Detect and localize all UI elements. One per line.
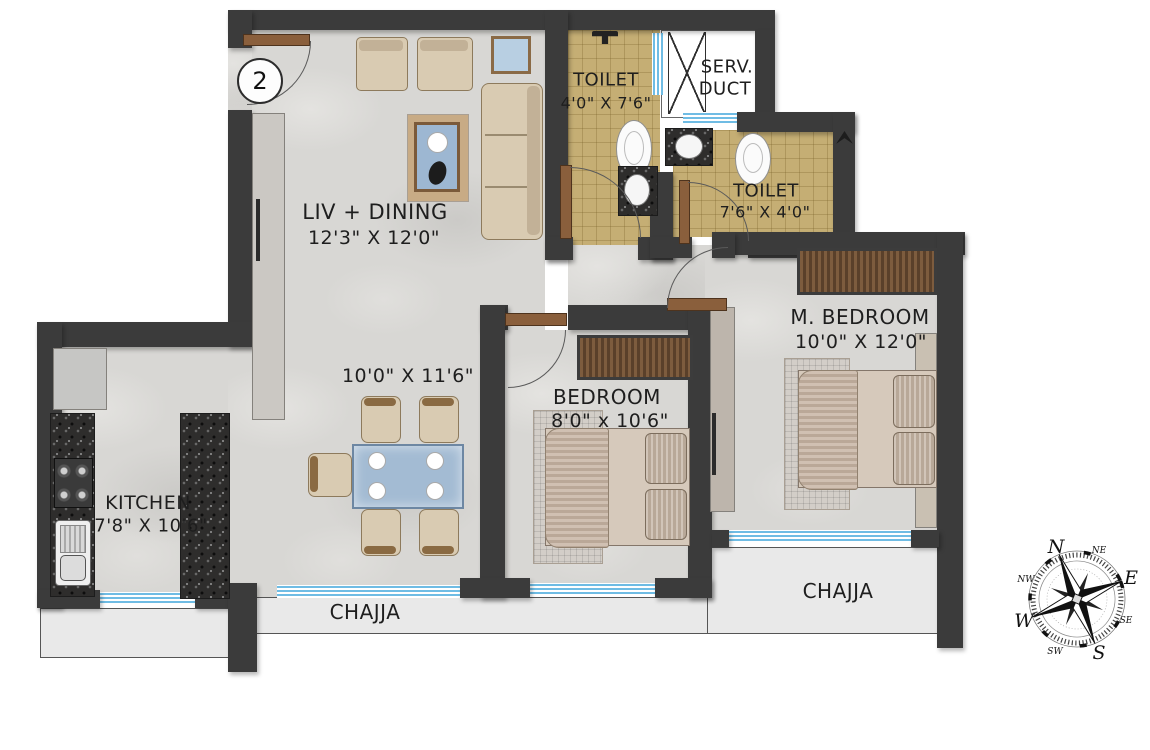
sink-bowl <box>60 555 86 581</box>
wall-segment <box>911 530 939 547</box>
wall-segment <box>655 578 712 598</box>
compass-label-ne: NE <box>1091 546 1107 556</box>
wall-segment <box>460 578 530 598</box>
wall-segment <box>712 530 729 547</box>
room-label-toilet-2: TOILET <box>733 181 799 202</box>
wardrobe <box>797 248 937 295</box>
compass-rose: N E S W NE SE SW NW <box>1003 533 1150 673</box>
chair-back <box>422 546 454 554</box>
wardrobe <box>577 335 693 380</box>
compass-label-w: W <box>1014 610 1035 632</box>
place-setting <box>368 482 386 500</box>
decor-plate <box>427 132 448 153</box>
tv-icon <box>256 199 260 261</box>
wall-segment <box>480 305 505 598</box>
room-dims-m-bedroom: 10'0" X 12'0" <box>795 331 927 353</box>
armchair-back <box>359 40 403 51</box>
chair-back <box>364 398 396 406</box>
room-label-toilet-1: TOILET <box>573 70 639 91</box>
compass-label-e: E <box>1123 567 1138 589</box>
window <box>727 530 913 544</box>
pillow <box>893 375 935 428</box>
wall-segment <box>228 583 257 672</box>
bed-blanket <box>798 370 858 490</box>
basin-counter <box>665 128 713 166</box>
label-chajja-left: CHAJJA <box>330 600 401 624</box>
wardrobe-handle <box>712 413 716 475</box>
sofa-seam <box>485 186 527 188</box>
wall-segment <box>937 232 963 648</box>
room-label-kitchen: KITCHEN <box>105 492 191 514</box>
wc-bowl <box>743 143 763 173</box>
window <box>530 583 655 596</box>
label-chajja-right: CHAJJA <box>803 579 874 603</box>
wall-segment <box>228 110 252 347</box>
wardrobe-side <box>710 307 735 512</box>
dining-chair <box>361 396 401 443</box>
wash-basin <box>675 134 703 159</box>
refrigerator <box>53 348 107 410</box>
room-label-m-bedroom: M. BEDROOM <box>790 305 929 329</box>
dining-chair <box>419 509 459 556</box>
armchair-back <box>420 40 468 51</box>
kitchen-sink <box>55 520 91 586</box>
chair-back <box>422 398 454 406</box>
wc <box>735 133 771 185</box>
pillow <box>645 433 687 484</box>
window <box>652 33 666 95</box>
armchair <box>356 37 408 91</box>
pillow <box>893 432 935 485</box>
window <box>277 585 463 598</box>
place-setting <box>426 452 444 470</box>
sink-drainboard <box>60 525 86 553</box>
sofa <box>481 83 543 240</box>
coffee-table <box>414 122 460 192</box>
wc-bowl <box>624 131 644 165</box>
armchair <box>417 37 473 91</box>
place-setting <box>368 452 386 470</box>
wall-segment <box>37 322 255 347</box>
room-label-liv-dining: LIV + DINING <box>302 200 447 224</box>
room-dims-dining: 10'0" X 11'6" <box>342 365 474 387</box>
tv-cabinet <box>252 113 285 420</box>
decor-bowl <box>426 159 450 187</box>
gas-stove <box>54 458 93 508</box>
room-dims-bedroom: 8'0" x 10'6" <box>551 410 669 432</box>
dining-chair <box>308 453 352 497</box>
room-label-serv-duct-1: SERV. <box>701 57 754 78</box>
room-dims-toilet-1: 4'0" X 7'6" <box>561 94 652 113</box>
chair-back <box>310 456 318 492</box>
chajja-kitchen <box>40 608 238 658</box>
entrance-badge: 2 <box>237 58 283 104</box>
wall-segment <box>755 30 775 125</box>
side-table <box>491 36 531 74</box>
sofa-seam <box>485 134 527 136</box>
compass-label-s: S <box>1092 642 1105 664</box>
chair-back <box>364 546 396 554</box>
compass-label-nw: NW <box>1016 575 1035 585</box>
room-dims-liv-dining: 12'3" X 12'0" <box>308 227 440 249</box>
room-dims-kitchen: 7'8" X 10'6" <box>94 516 208 537</box>
compass-label-n: N <box>1047 536 1066 558</box>
room-label-serv-duct-2: DUCT <box>699 79 752 100</box>
dining-chair <box>361 509 401 556</box>
compass-label-se: SE <box>1120 616 1133 626</box>
dining-table <box>352 444 464 509</box>
wall-segment <box>545 237 573 260</box>
place-setting <box>426 482 444 500</box>
room-label-bedroom: BEDROOM <box>553 385 661 409</box>
floor-plan: 2 LIV + DINING 12'3" X 12'0" 10'0" X 11'… <box>0 0 1150 750</box>
wall-segment <box>228 10 775 30</box>
bed-blanket <box>545 428 609 548</box>
window <box>683 112 737 126</box>
compass-label-sw: SW <box>1047 647 1063 657</box>
pillow <box>645 489 687 540</box>
dining-chair <box>419 396 459 443</box>
chajja-left <box>256 597 710 634</box>
sofa-back <box>527 86 540 235</box>
room-dims-toilet-2: 7'6" X 4'0" <box>720 203 811 222</box>
door-leaf <box>505 313 567 326</box>
